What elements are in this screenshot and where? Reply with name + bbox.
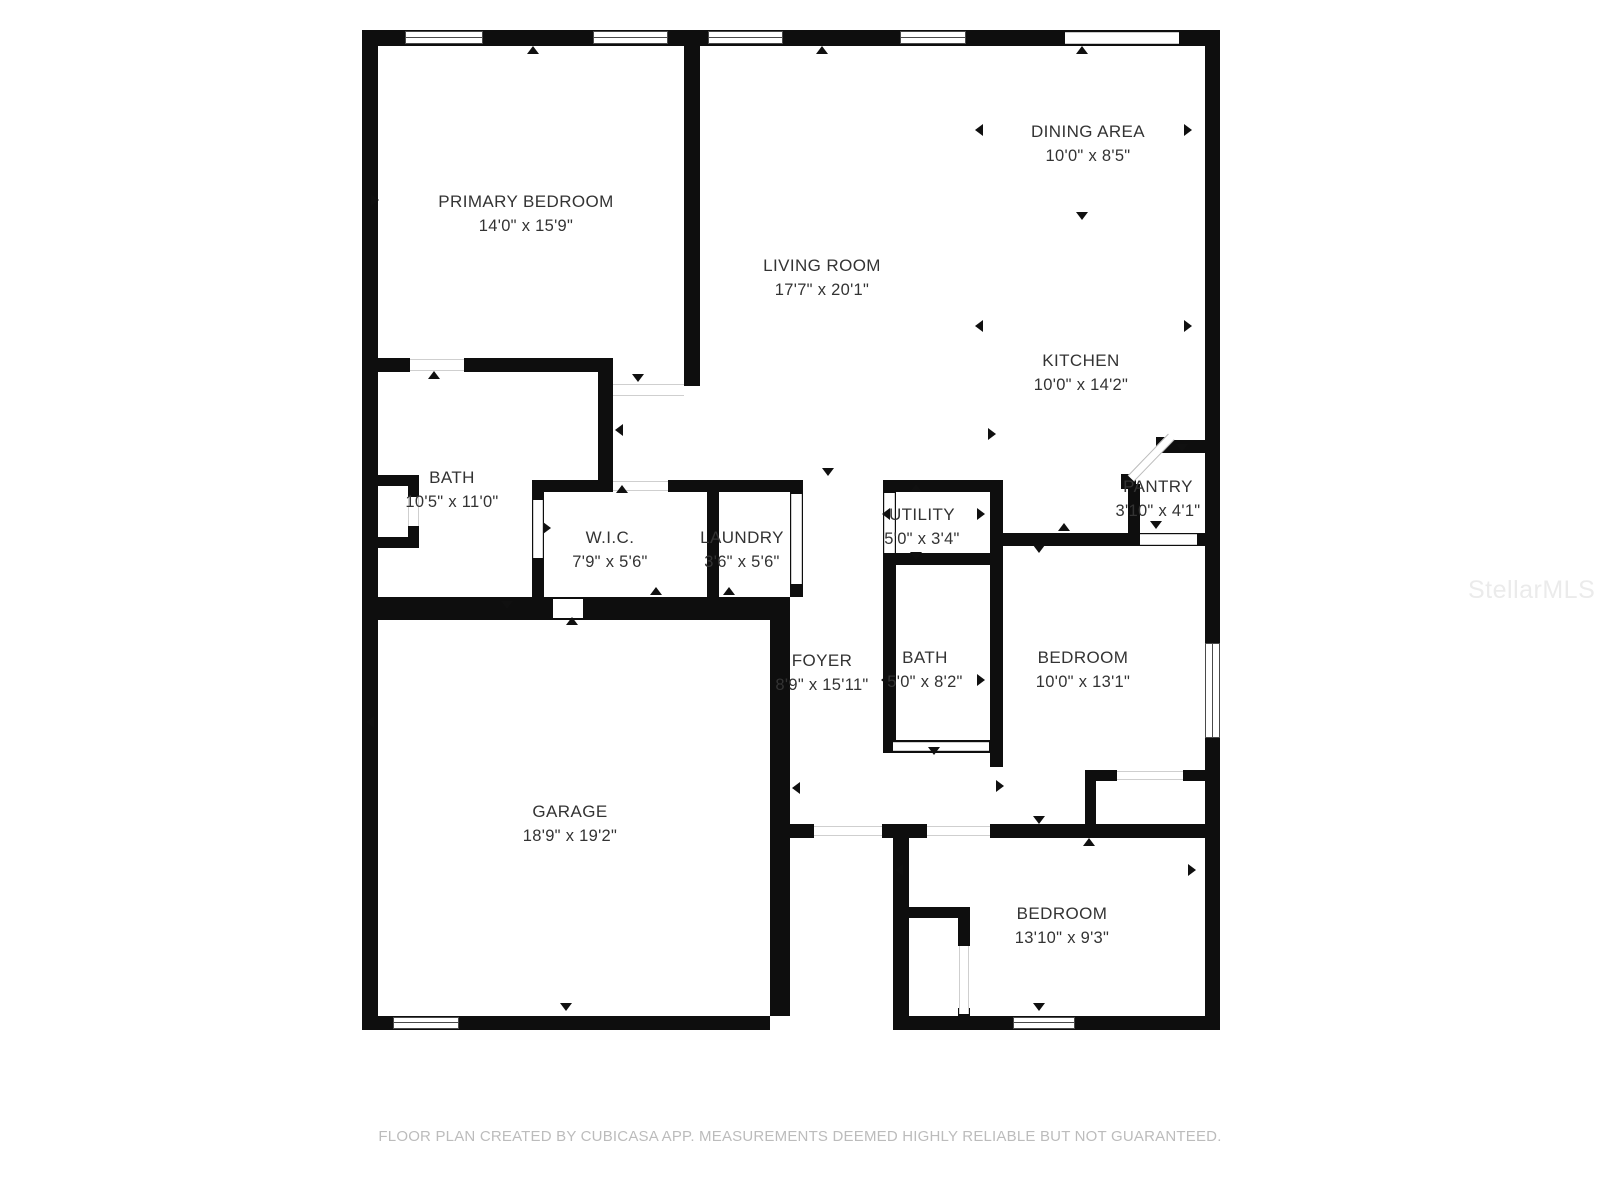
window [393, 1017, 459, 1029]
room-label-bedroom-right: BEDROOM 10'0" x 13'1" [1036, 645, 1130, 695]
room-label-bath-hall: BATH 5'0" x 8'2" [887, 645, 962, 695]
wall-segment [1085, 770, 1096, 827]
room-label-kitchen: KITCHEN 10'0" x 14'2" [1034, 348, 1128, 398]
room-name: UTILITY [884, 502, 959, 527]
room-dims: 5'0" x 8'2" [887, 670, 962, 695]
wall-segment [990, 824, 1220, 838]
direction-marker-icon [1184, 124, 1192, 136]
direction-marker-icon [792, 782, 800, 794]
direction-marker-icon [527, 46, 539, 54]
room-dims: 5'0" x 3'4" [884, 527, 959, 552]
direction-marker-icon [975, 320, 983, 332]
wall-segment [909, 907, 970, 918]
room-dims: 10'0" x 13'1" [1036, 670, 1130, 695]
wall-segment [790, 824, 814, 838]
room-dims: 10'0" x 14'2" [1034, 373, 1128, 398]
wall-segment [362, 358, 410, 372]
direction-marker-icon [1176, 444, 1188, 452]
direction-marker-icon [822, 468, 834, 476]
wall-segment [1205, 738, 1220, 1030]
wall-segment [1183, 770, 1220, 781]
room-name: PRIMARY BEDROOM [438, 189, 613, 214]
direction-marker-icon [1184, 320, 1192, 332]
direction-marker-icon [501, 601, 513, 609]
direction-marker-icon [975, 124, 983, 136]
direction-marker-icon [977, 508, 985, 520]
direction-marker-icon [1076, 212, 1088, 220]
direction-marker-icon [895, 864, 903, 876]
room-label-bath-primary: BATH 10'5" x 11'0" [405, 465, 498, 515]
room-dims: 10'5" x 11'0" [405, 490, 498, 515]
direction-marker-icon [1033, 816, 1045, 824]
sliding-door-opening [959, 946, 969, 1014]
room-label-dining-area: DINING AREA 10'0" x 8'5" [1031, 119, 1145, 169]
room-dims: 3'6" x 5'6" [700, 550, 784, 575]
wall-segment [362, 537, 414, 548]
direction-marker-icon [650, 587, 662, 595]
direction-marker-icon [566, 617, 578, 625]
room-dims: 18'9" x 19'2" [523, 824, 617, 849]
room-name: KITCHEN [1034, 348, 1128, 373]
room-label-pantry: PANTRY 3'10" x 4'1" [1116, 474, 1201, 524]
wall-segment [598, 358, 613, 482]
wall-segment [464, 358, 598, 372]
wall-segment [990, 480, 1003, 767]
room-label-wic: W.I.C. 7'9" x 5'6" [572, 525, 647, 575]
door-opening [791, 494, 802, 584]
wall-segment [668, 480, 790, 492]
direction-marker-icon [1188, 864, 1196, 876]
direction-marker-icon [1058, 523, 1070, 531]
window [1013, 1017, 1075, 1029]
room-name: BEDROOM [1036, 645, 1130, 670]
window [593, 31, 668, 44]
room-name: DINING AREA [1031, 119, 1145, 144]
window [708, 31, 783, 44]
direction-marker-icon [816, 46, 828, 54]
door-opening [533, 500, 543, 558]
room-name: BATH [405, 465, 498, 490]
room-name: PANTRY [1116, 474, 1201, 499]
door-opening [613, 384, 684, 396]
floor-plan: PRIMARY BEDROOM 14'0" x 15'9" LIVING ROO… [0, 0, 1600, 1200]
room-name: FOYER [775, 648, 868, 673]
window [1205, 643, 1220, 738]
direction-marker-icon [988, 428, 996, 440]
wall-segment [1205, 30, 1220, 643]
direction-marker-icon [1033, 545, 1045, 553]
direction-marker-icon [1033, 1003, 1045, 1011]
direction-marker-icon [910, 552, 922, 560]
wall-segment [532, 480, 613, 492]
direction-marker-icon [543, 522, 551, 534]
room-label-laundry: LAUNDRY 3'6" x 5'6" [700, 525, 784, 575]
direction-marker-icon [910, 484, 922, 492]
room-dims: 10'0" x 8'5" [1031, 144, 1145, 169]
room-label-bedroom-bottom: BEDROOM 13'10" x 9'3" [1015, 901, 1109, 951]
disclaimer-text: FLOOR PLAN CREATED BY CUBICASA APP. MEAS… [0, 1128, 1600, 1145]
room-label-garage: GARAGE 18'9" x 19'2" [523, 799, 617, 849]
room-label-foyer: FOYER 8'9" x 15'11" [775, 648, 868, 698]
stellar-mls-watermark: StellarMLS [1468, 576, 1595, 605]
direction-marker-icon [616, 485, 628, 493]
direction-marker-icon [723, 587, 735, 595]
wall-segment [894, 824, 927, 838]
direction-marker-icon [560, 1003, 572, 1011]
direction-marker-icon [1083, 838, 1095, 846]
direction-marker-icon [977, 674, 985, 686]
room-label-living-room: LIVING ROOM 17'7" x 20'1" [763, 253, 881, 303]
door-opening [553, 599, 583, 618]
door-opening [410, 359, 464, 371]
room-name: BATH [887, 645, 962, 670]
entry-door-opening [814, 826, 882, 836]
door-opening [927, 826, 990, 836]
room-name: BEDROOM [1015, 901, 1109, 926]
door-opening [1140, 534, 1197, 545]
wall-segment [883, 480, 1003, 492]
direction-marker-icon [1076, 46, 1088, 54]
direction-marker-icon [928, 747, 940, 755]
room-label-utility: UTILITY 5'0" x 3'4" [884, 502, 959, 552]
direction-marker-icon [996, 780, 1004, 792]
room-name: LIVING ROOM [763, 253, 881, 278]
direction-marker-icon [366, 716, 374, 728]
room-label-primary-bedroom: PRIMARY BEDROOM 14'0" x 15'9" [438, 189, 613, 239]
room-name: W.I.C. [572, 525, 647, 550]
room-dims: 3'10" x 4'1" [1116, 499, 1201, 524]
wall-segment [882, 824, 894, 838]
window [1065, 32, 1179, 44]
room-dims: 8'9" x 15'11" [775, 673, 868, 698]
sliding-door-opening [1117, 771, 1183, 780]
wall-segment [883, 553, 1003, 565]
window [405, 31, 483, 44]
room-name: GARAGE [523, 799, 617, 824]
direction-marker-icon [632, 374, 644, 382]
window [900, 31, 966, 44]
wall-segment [958, 918, 970, 946]
wall-segment [362, 30, 378, 1030]
wall-segment [408, 526, 419, 548]
direction-marker-icon [615, 424, 623, 436]
direction-marker-icon [371, 194, 379, 206]
room-dims: 13'10" x 9'3" [1015, 926, 1109, 951]
room-dims: 17'7" x 20'1" [763, 278, 881, 303]
room-name: LAUNDRY [700, 525, 784, 550]
room-dims: 14'0" x 15'9" [438, 214, 613, 239]
direction-marker-icon [428, 371, 440, 379]
room-dims: 7'9" x 5'6" [572, 550, 647, 575]
wall-segment [684, 30, 700, 386]
door-opening [893, 742, 989, 751]
